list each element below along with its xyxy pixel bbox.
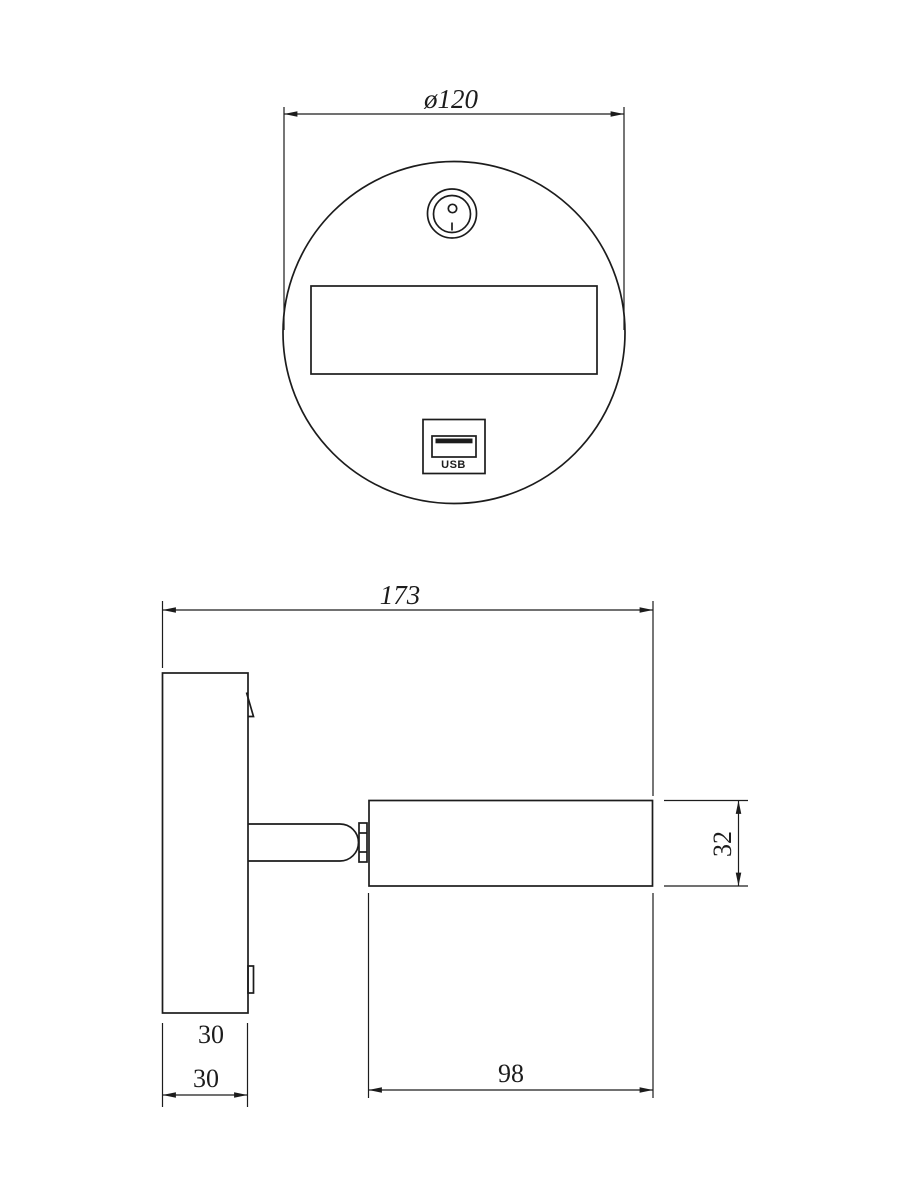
- hinge-bracket: [359, 823, 367, 862]
- dim-label-plate-depth: 30: [193, 1064, 219, 1093]
- usb-label: USB: [441, 459, 466, 471]
- usb-port-icon: USB: [423, 420, 485, 474]
- lamp-head: [369, 801, 653, 887]
- lamp-dimension-drawing: USB ø120: [0, 0, 900, 1200]
- dim-head-length-98: 98: [369, 893, 654, 1098]
- dim-label-plate-width: 30: [198, 1020, 224, 1049]
- dim-diameter-120: ø120: [284, 84, 624, 330]
- top-view: USB ø120: [283, 84, 625, 504]
- dim-label-head-length: 98: [498, 1059, 524, 1088]
- dim-head-height-32: 32: [664, 801, 748, 887]
- dim-label-overall-width: 173: [380, 580, 421, 610]
- pivot-arm: [248, 824, 359, 861]
- dim-overall-width-173: 173: [163, 580, 654, 796]
- led-window: [311, 286, 597, 374]
- dim-plate-30-30: 30 30: [163, 1020, 248, 1107]
- technical-drawing-page: USB ø120: [0, 0, 900, 1200]
- plate-bottom-tab: [248, 966, 254, 993]
- power-switch-icon: [428, 189, 477, 238]
- wall-plate: [163, 673, 249, 1013]
- switch-off-dot-icon: [448, 204, 456, 212]
- dim-label-head-height: 32: [708, 831, 737, 857]
- dim-label-diameter: ø120: [423, 84, 479, 114]
- side-view: 173 32 98 30 30: [163, 580, 749, 1107]
- usb-tongue: [436, 439, 473, 444]
- hinge-clamp: [359, 823, 367, 862]
